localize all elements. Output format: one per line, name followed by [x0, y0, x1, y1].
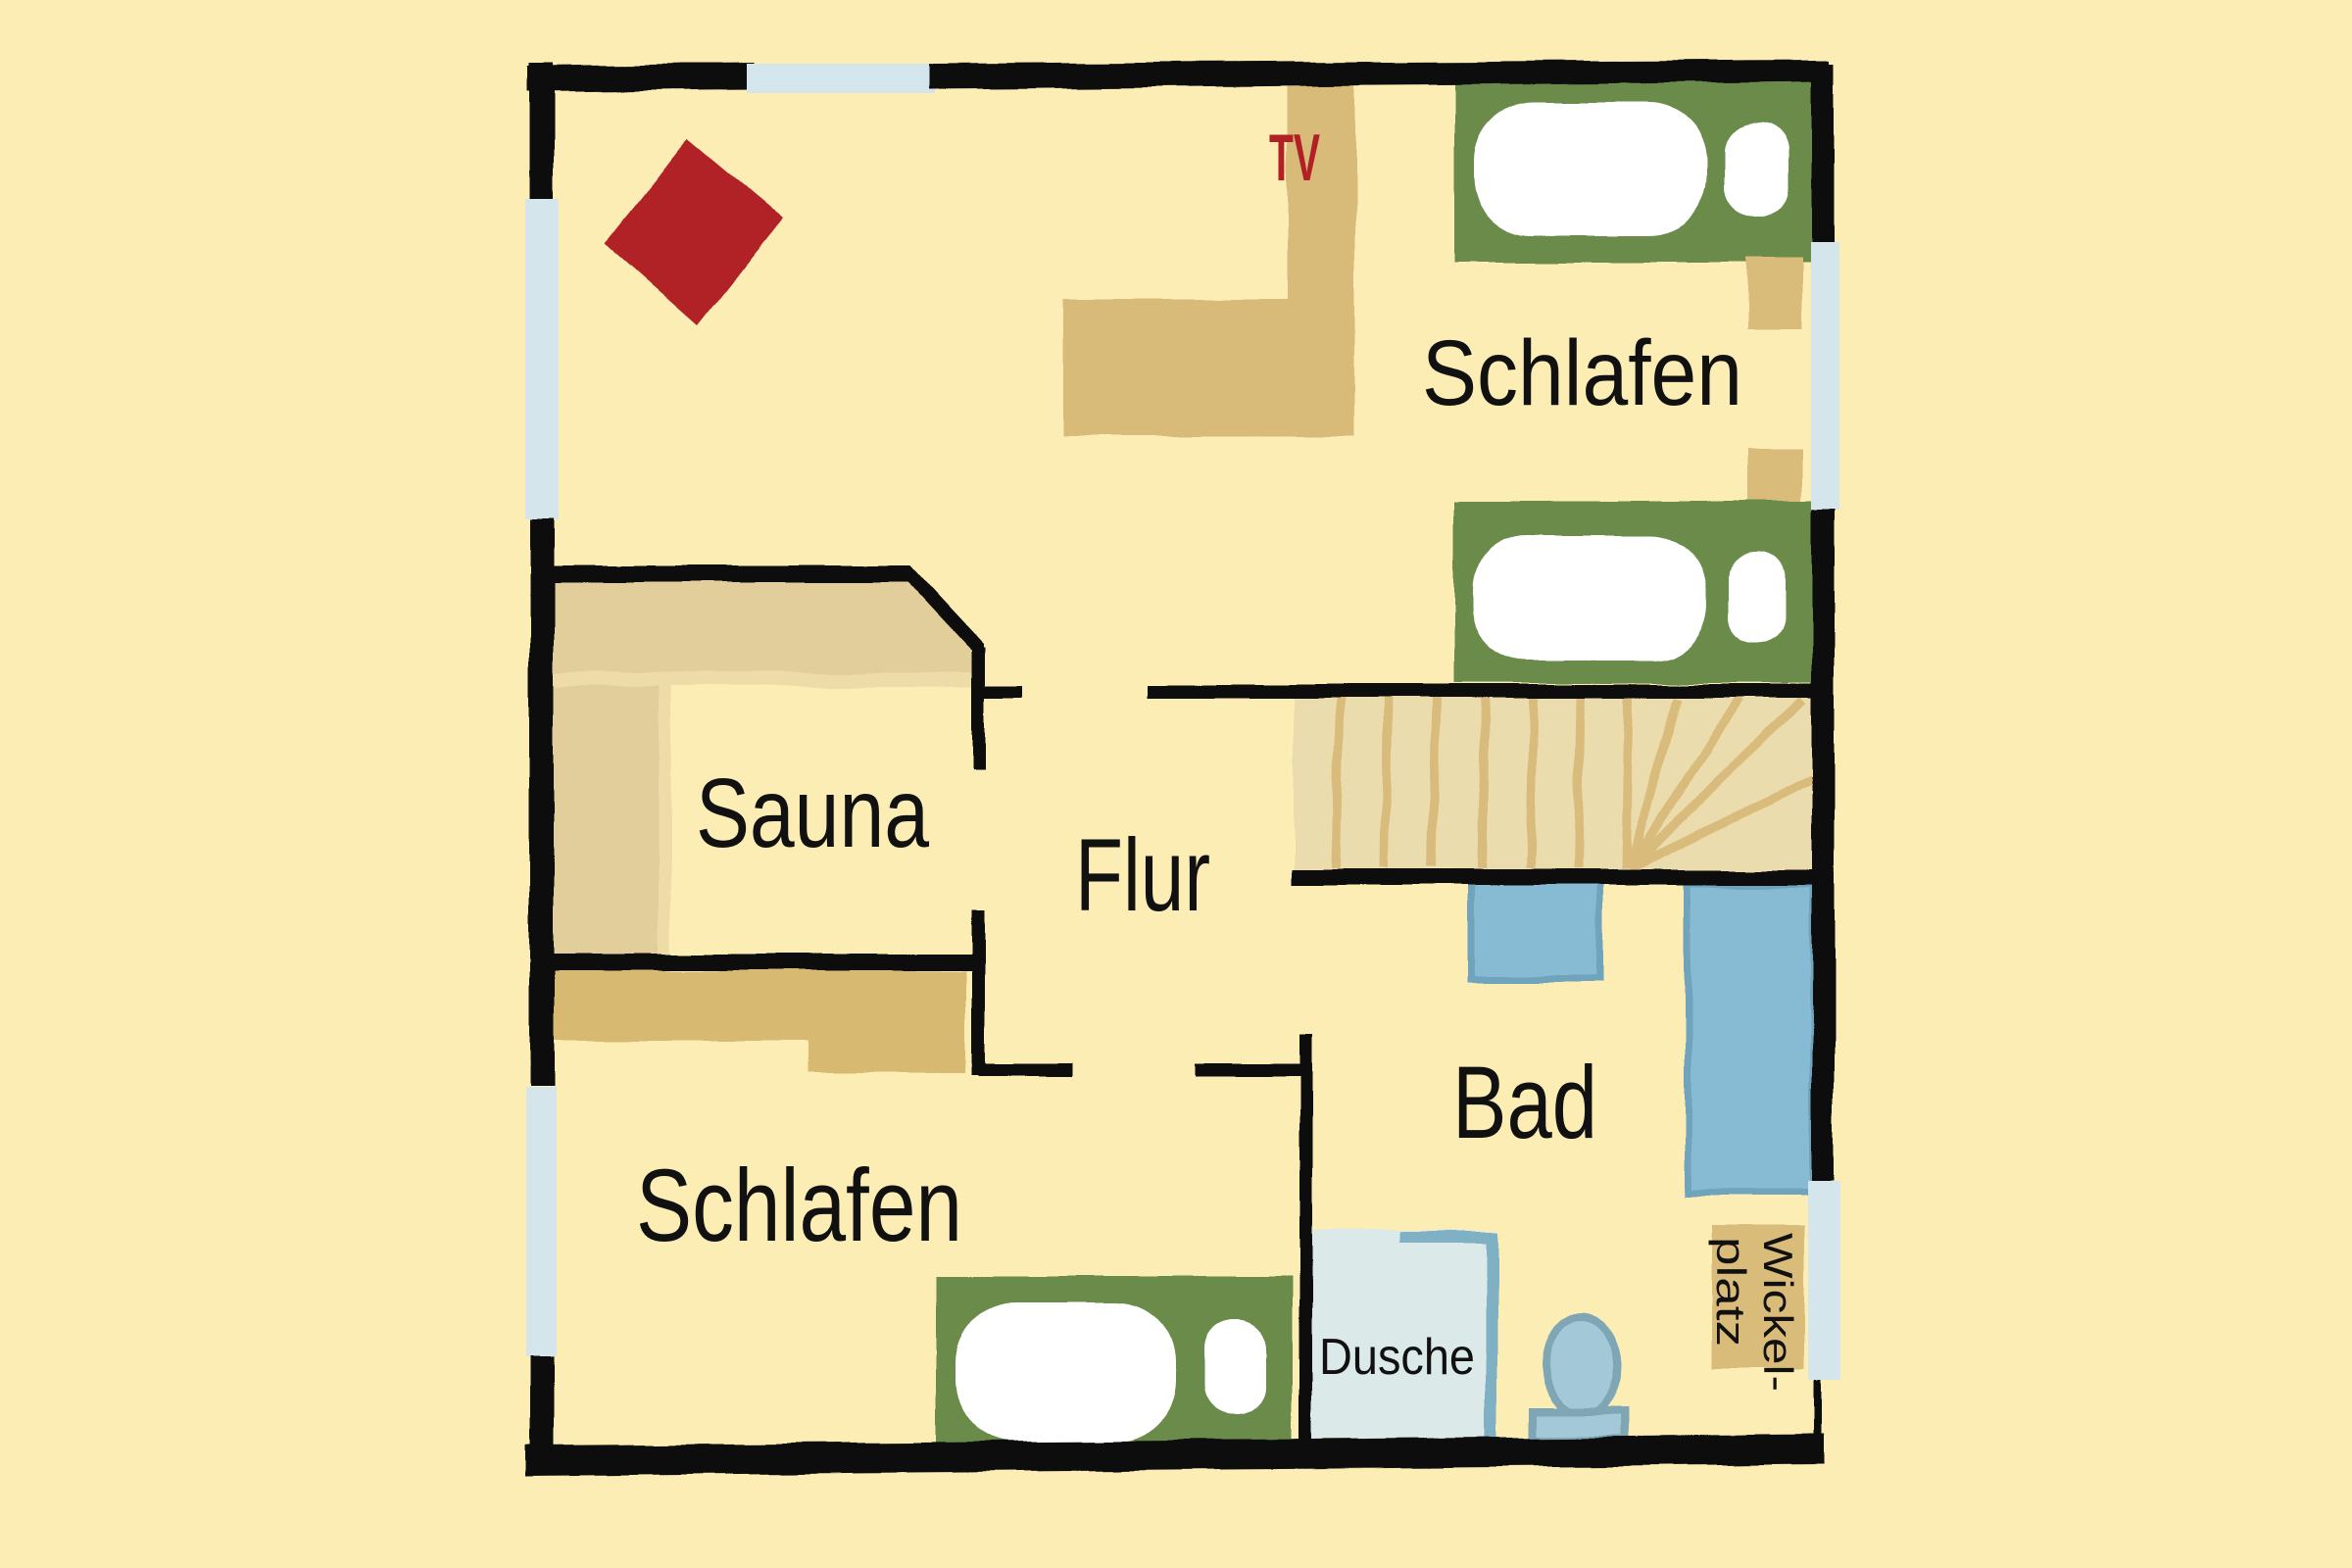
svg-text:TV: TV	[1269, 121, 1320, 195]
svg-text:Schlafen: Schlafen	[1422, 321, 1742, 425]
svg-text:platz: platz	[1708, 1237, 1754, 1347]
svg-text:Wickel-: Wickel-	[1755, 1233, 1801, 1392]
svg-text:Flur: Flur	[1075, 818, 1210, 933]
svg-text:Dusche: Dusche	[1319, 1329, 1475, 1386]
svg-text:Sauna: Sauna	[696, 759, 929, 868]
svg-text:Bad: Bad	[1452, 1046, 1597, 1160]
svg-text:Schlafen: Schlafen	[636, 1149, 962, 1263]
